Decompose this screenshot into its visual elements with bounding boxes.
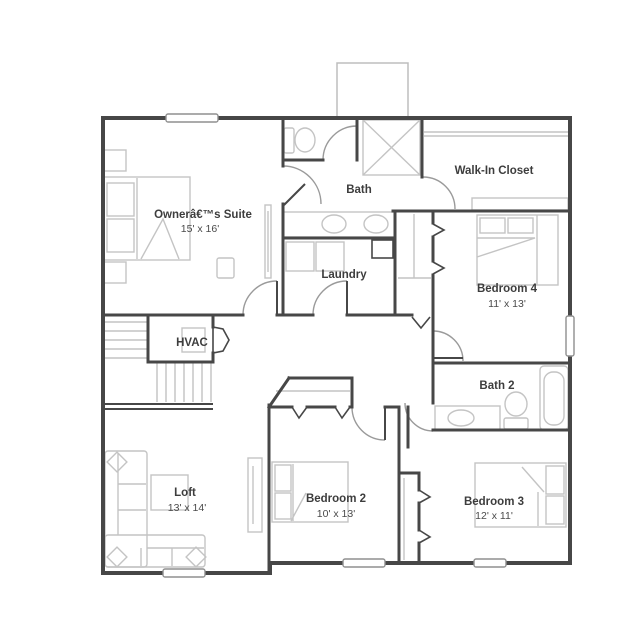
room-dims-bedroom-2: 10' x 13' — [317, 508, 355, 520]
window-icon — [343, 559, 385, 567]
hvac-access-door — [213, 327, 229, 353]
room-label-hvac: HVAC — [176, 337, 208, 349]
window-icon — [566, 316, 574, 356]
washer-icon — [286, 242, 314, 271]
console-icon — [248, 458, 262, 532]
shower-icon — [363, 120, 420, 175]
toilet-icon — [504, 392, 528, 429]
toilet-tank-icon — [284, 128, 294, 153]
bedroom4-furniture — [398, 214, 558, 285]
vanity-icon — [435, 406, 500, 430]
bath-vanity-icon — [283, 212, 395, 237]
room-dims-bedroom-4: 11' x 13' — [488, 298, 526, 310]
room-label-bedroom-3: Bedroom 3 — [464, 496, 524, 508]
water-closet-fixtures — [284, 128, 315, 153]
bathtub-icon — [540, 366, 568, 430]
room-label-bath: Bath — [346, 184, 372, 196]
window-icon — [474, 559, 506, 567]
dryer-icon — [316, 242, 344, 271]
room-label-laundry: Laundry — [321, 269, 367, 281]
room-label-loft: Loft — [174, 487, 196, 499]
room-label-walk-in-closet: Walk-In Closet — [455, 165, 534, 177]
window-icon — [166, 114, 218, 122]
sink-icon — [322, 215, 346, 233]
bed-icon — [477, 215, 558, 285]
room-label-bedroom-4: Bedroom 4 — [477, 283, 538, 295]
closet-shelf — [398, 214, 431, 278]
room-label-bath-2: Bath 2 — [479, 380, 514, 392]
room-label-bedroom-2: Bedroom 2 — [306, 493, 366, 505]
nightstand-icon — [104, 150, 126, 171]
loft-railing — [103, 404, 213, 409]
linen-closet — [372, 240, 393, 258]
floor-plan-page: Ownerâ€™s Suite 15' x 16' Bath Walk-In C… — [0, 0, 640, 640]
dresser-icon — [265, 205, 271, 278]
room-label-owners-suite: Ownerâ€™s Suite — [154, 209, 252, 221]
sink-icon — [448, 410, 474, 426]
nightstand-icon — [104, 262, 126, 283]
floor-plan: Ownerâ€™s Suite 15' x 16' Bath Walk-In C… — [0, 0, 640, 640]
sink-icon — [364, 215, 388, 233]
chimney-outline — [337, 63, 408, 118]
ottoman-icon — [217, 258, 234, 278]
room-dims-bedroom-3: 12' x 11' — [475, 510, 513, 522]
laundry-fixtures — [286, 242, 344, 271]
toilet-icon — [295, 128, 315, 152]
window-icon — [163, 569, 205, 577]
room-dims-owners-suite: 15' x 16' — [181, 223, 219, 235]
room-dims-loft: 13' x 14' — [168, 502, 206, 514]
bath2-fixtures — [435, 366, 568, 430]
